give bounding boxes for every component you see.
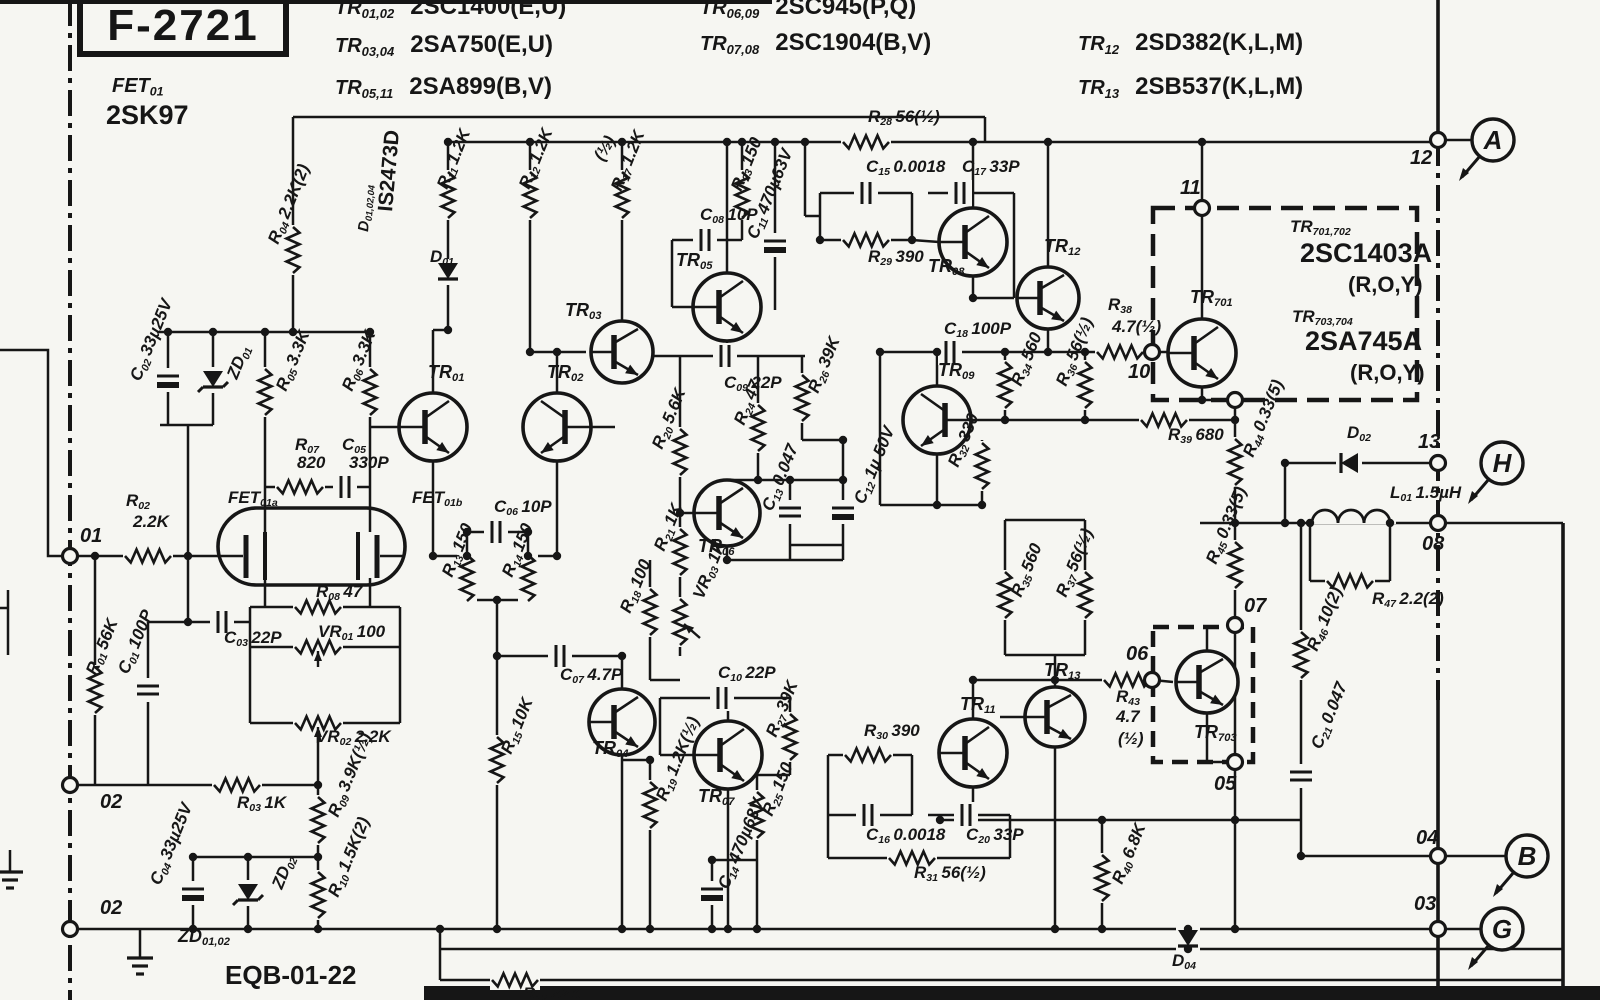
label-(R,O,Y): (R,O,Y): [1348, 272, 1423, 297]
schematic-title: F-2721: [107, 1, 258, 50]
junction-dot: [493, 596, 501, 604]
transistor-TR07: [694, 721, 762, 789]
junction-dot: [969, 294, 977, 302]
transistor-TR703: [1176, 651, 1238, 713]
junction-dot: [184, 552, 192, 560]
parts-list-row-07,08: TR07,082SC1904(B,V): [700, 29, 931, 57]
label-C09: C0922P: [724, 373, 782, 394]
transistor-TR02: [523, 393, 591, 461]
junction-dot: [708, 856, 716, 864]
label-R05: R053.3K: [272, 326, 316, 394]
junction-dot: [1184, 925, 1192, 933]
junction-dot: [1098, 925, 1106, 933]
junction-dot: [493, 652, 501, 660]
label-FET01b: FET01b: [412, 488, 463, 509]
label-TR13: TR13: [1044, 660, 1081, 682]
label-ZD02: ZD02: [268, 852, 301, 893]
junction-dot: [1001, 416, 1009, 424]
label-R30: R30390: [864, 721, 920, 742]
test-point: [1145, 673, 1160, 688]
label-2SK97: 2SK97: [106, 100, 189, 130]
label-C18: C18100P: [944, 319, 1012, 340]
label-R10: R101.5K(2): [324, 814, 375, 900]
label-C06: C0610P: [494, 497, 552, 518]
transistor-TR01: [399, 393, 467, 461]
junction-dot: [618, 925, 626, 933]
junction-dot: [754, 476, 762, 484]
transistor-TR701: [1168, 319, 1236, 387]
test-point: [63, 549, 78, 564]
label-TR703: TR703: [1194, 722, 1237, 744]
junction-dot: [244, 925, 252, 933]
label-R28: R2856(½): [868, 107, 940, 128]
junction-dot: [1281, 519, 1289, 527]
junction-dot: [189, 853, 197, 861]
junction-dot: [1051, 925, 1059, 933]
label-4.7: 4.7: [1115, 707, 1141, 726]
label-TR02: TR02: [547, 362, 584, 384]
junction-dot: [936, 816, 944, 824]
junction-dot: [1306, 519, 1314, 527]
junction-dot: [646, 756, 654, 764]
title-block: F-2721: [80, 0, 286, 54]
label-ZD01: ZD01: [223, 342, 256, 383]
label-2.2K: 2.2K: [132, 512, 171, 531]
svg-text:A: A: [1483, 125, 1503, 155]
label-330P: 330P: [349, 453, 389, 472]
junction-dot: [876, 348, 884, 356]
junction-dot: [1297, 519, 1305, 527]
junction-dot: [184, 618, 192, 626]
label-C21: C210.047: [1307, 678, 1353, 752]
junction-dot: [1386, 519, 1394, 527]
junction-dot: [493, 925, 501, 933]
junction-dot: [978, 501, 986, 509]
label-TR09: TR09: [938, 360, 975, 382]
junction-dot: [444, 326, 452, 334]
label-820: 820: [297, 453, 326, 472]
label-TR05: TR05: [676, 250, 713, 272]
test-point: [1145, 345, 1160, 360]
junction-dot: [553, 552, 561, 560]
label-R22: R2222K: [523, 984, 583, 1000]
svg-text:H: H: [1493, 448, 1513, 478]
junction-dot: [526, 348, 534, 356]
junction-dot: [839, 476, 847, 484]
transistor-TR05: [693, 273, 761, 341]
label-C20: C2033P: [966, 825, 1024, 846]
junction-dot: [1198, 138, 1206, 146]
junction-dot: [1184, 945, 1192, 953]
label-C17: C1733P: [962, 157, 1020, 178]
junction-dot: [969, 676, 977, 684]
test-point: [1431, 849, 1446, 864]
junction-dot: [1231, 416, 1239, 424]
node-label-05: 05: [1214, 773, 1237, 795]
label-4.7(½): 4.7(½): [1111, 317, 1161, 336]
bottom-bar: [424, 986, 1600, 1000]
junction-dot: [1297, 852, 1305, 860]
svg-text:G: G: [1492, 914, 1512, 944]
transistor-TR12: [1017, 267, 1079, 329]
node-label-03: 03: [1414, 893, 1436, 915]
label-FET01a: FET01a: [228, 488, 278, 509]
node-label-01: 01: [80, 525, 102, 547]
junction-dot: [553, 348, 561, 356]
junction-dot: [314, 781, 322, 789]
junction-dot: [1231, 925, 1239, 933]
label-C07: C074.7P: [560, 665, 623, 686]
junction-dot: [708, 925, 716, 933]
node-label-10: 10: [1128, 361, 1150, 383]
junction-dot: [314, 853, 322, 861]
label-L01: L011.5µH: [1390, 483, 1462, 504]
transistor-TR11: [939, 719, 1007, 787]
junction-dot: [244, 853, 252, 861]
label-VR01: VR01100: [318, 622, 386, 643]
parts-list-row-12: TR122SD382(K,L,M): [1078, 29, 1303, 57]
junction-dot: [816, 236, 824, 244]
node-label-06: 06: [1126, 643, 1149, 665]
terminal-H: H: [1468, 442, 1523, 504]
label-TR03: TR03: [565, 300, 602, 322]
junction-dot: [723, 138, 731, 146]
label-(½): (½): [590, 132, 619, 164]
test-point: [1431, 516, 1446, 531]
label-R03: R031K: [237, 793, 288, 814]
junction-dot: [429, 552, 437, 560]
label-D01: D01: [430, 247, 454, 268]
label-(½): (½): [1118, 729, 1144, 748]
node-label-11: 11: [1180, 177, 1201, 199]
test-point: [1228, 618, 1243, 633]
node-label-04: 04: [1416, 827, 1438, 849]
junction-dot: [209, 328, 217, 336]
test-point: [63, 922, 78, 937]
label-R02: R02: [126, 491, 150, 512]
junction-dot: [1098, 816, 1106, 824]
node-label-07: 07: [1244, 595, 1267, 617]
label-C14: C14470µ63V: [714, 794, 770, 892]
label-(R,O,Y): (R,O,Y): [1350, 360, 1425, 385]
junction-dot: [91, 552, 99, 560]
label-R43: R43: [1116, 687, 1140, 708]
label-VR02: VR022.2K: [316, 727, 392, 748]
label-EQB-01-22: EQB-01-22: [225, 960, 357, 990]
label-2SA745A: 2SA745A: [1305, 326, 1422, 356]
junction-dot: [1044, 348, 1052, 356]
label-R40: R406.8K: [1108, 819, 1152, 887]
label-FET01: FET01: [112, 75, 164, 99]
label-R39: R39680: [1168, 425, 1224, 446]
junction-dot: [801, 138, 809, 146]
label-C15: C150.0018: [866, 157, 946, 178]
junction-dot: [753, 925, 761, 933]
parts-list-row-13: TR132SB537(K,L,M): [1078, 73, 1303, 101]
junction-dot: [969, 138, 977, 146]
label-D02: D02: [1347, 423, 1371, 444]
label-R44: R440.33(5): [1239, 377, 1289, 461]
terminal-A: A: [1459, 119, 1514, 181]
node-label-12: 12: [1410, 147, 1432, 169]
junction-dot: [1044, 138, 1052, 146]
label-R31: R3156(½): [914, 863, 986, 884]
junction-dot: [1198, 396, 1206, 404]
label-C12: C121µ 50V: [850, 422, 901, 507]
test-point: [1228, 393, 1243, 408]
junction-dot: [1001, 348, 1009, 356]
label-TR11: TR11: [960, 694, 996, 716]
node-label-02: 02: [100, 791, 122, 813]
label-R29: R29390: [868, 247, 924, 268]
label-R15: R1510K: [497, 693, 539, 757]
labels-layer: FET012SK97R042.2K(2)R053.3KR063.3KC0233µ…: [80, 0, 1462, 1000]
label-R26: R2639K: [804, 332, 846, 396]
label-TR701,702: TR701,702: [1290, 217, 1351, 238]
label-IS2473D: IS2473D: [374, 129, 404, 212]
label-TR01: TR01: [428, 362, 464, 384]
transistor-TR03: [591, 321, 653, 383]
junction-dot: [724, 925, 732, 933]
junction-dot: [618, 652, 626, 660]
terminal-G: G: [1468, 908, 1523, 970]
test-point: [63, 778, 78, 793]
junction-dot: [771, 138, 779, 146]
schematic-page: FET012SK97R042.2K(2)R053.3KR063.3KC0233µ…: [0, 0, 1600, 1000]
node-label-02: 02: [100, 897, 122, 919]
test-point: [1431, 922, 1446, 937]
junction-dot: [933, 501, 941, 509]
parts-list-row-05,11: TR05,112SA899(B,V): [335, 73, 552, 101]
wire: [0, 350, 70, 556]
test-point: [1228, 755, 1243, 770]
label-TR701: TR701: [1190, 287, 1233, 309]
label-R47: R472.2(2): [1372, 589, 1444, 610]
junction-dot: [908, 236, 916, 244]
label-R38: R38: [1108, 295, 1132, 316]
label-TR12: TR12: [1044, 236, 1081, 258]
terminals-layer: AHBG: [1459, 119, 1548, 970]
label-C08: C0810P: [700, 205, 758, 226]
schematic: FET012SK97R042.2K(2)R053.3KR063.3KC0233µ…: [0, 0, 1600, 1000]
junction-dot: [314, 925, 322, 933]
label-2SC1403A: 2SC1403A: [1300, 238, 1432, 268]
parts-list-row-03,04: TR03,042SA750(E,U): [335, 31, 553, 59]
label-TR703,704: TR703,704: [1292, 307, 1353, 328]
svg-text:B: B: [1518, 841, 1537, 871]
label-C03: C0322P: [224, 628, 282, 649]
junction-dot: [436, 925, 444, 933]
node-label-08: 08: [1422, 533, 1445, 555]
junction-dot: [933, 348, 941, 356]
junction-dot: [1281, 459, 1289, 467]
test-point: [1195, 201, 1210, 216]
test-point: [1431, 456, 1446, 471]
label-C10: C1022P: [718, 663, 776, 684]
node-label-13: 13: [1418, 431, 1440, 453]
transistor-TR13: [1025, 687, 1085, 747]
terminal-B: B: [1493, 835, 1548, 897]
junction-dot: [261, 328, 269, 336]
junction-dot: [646, 925, 654, 933]
label-C16: C160.0018: [866, 825, 946, 846]
label-D04: D04: [1172, 951, 1196, 972]
label-C04: C0433µ25V: [146, 799, 198, 888]
test-point: [1431, 133, 1446, 148]
junction-dot: [839, 436, 847, 444]
label-R46: R4610(2): [1303, 584, 1348, 654]
junction-dot: [1081, 416, 1089, 424]
label-R34: R34560: [1007, 329, 1048, 389]
junction-dot: [1231, 816, 1239, 824]
label-C01: C01100P: [114, 607, 159, 678]
